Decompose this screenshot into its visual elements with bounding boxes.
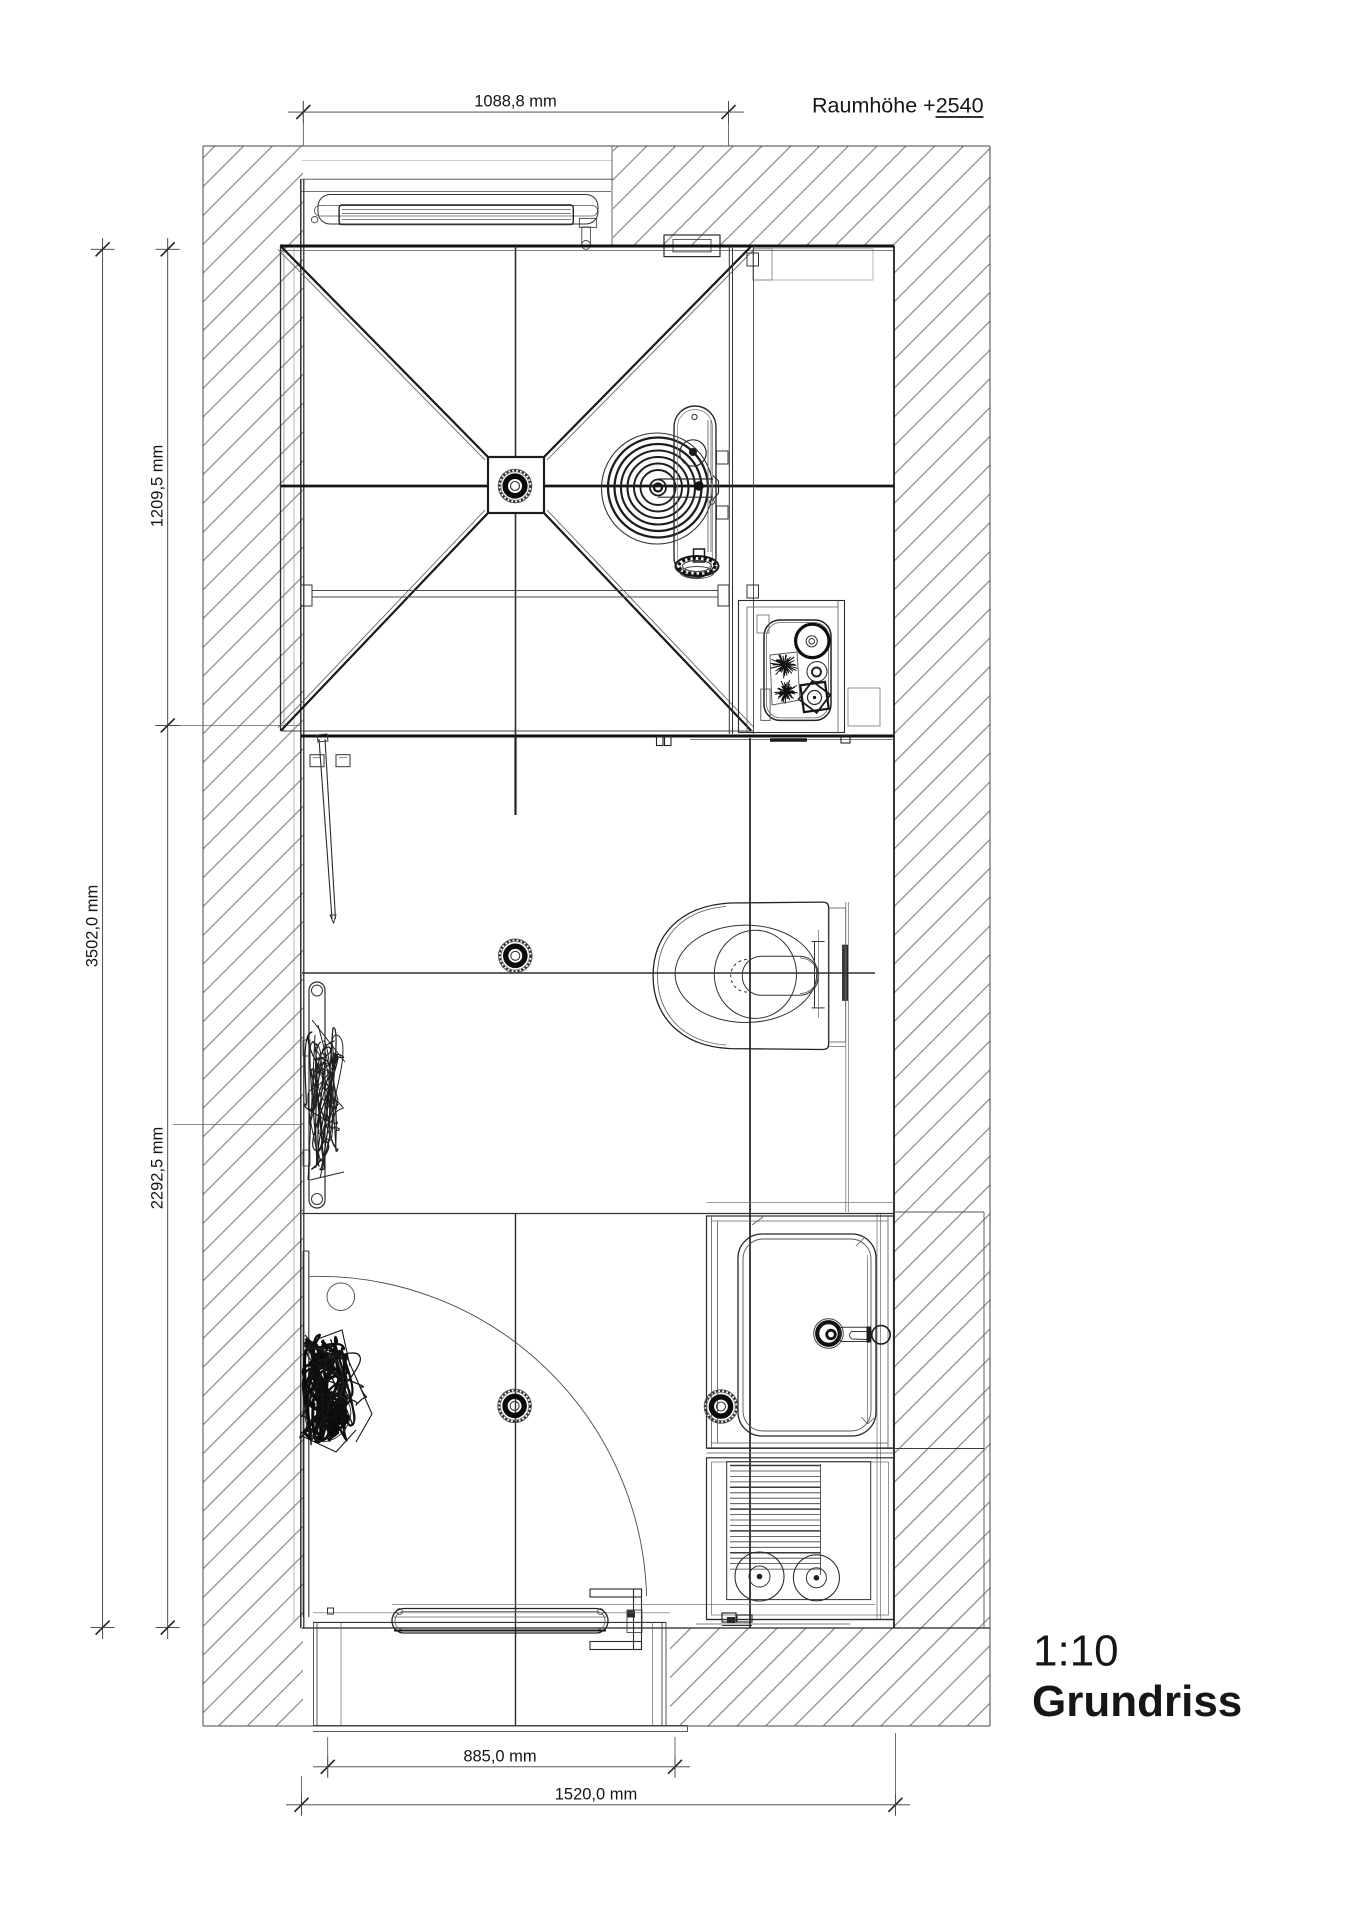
svg-text:3502,0 mm: 3502,0 mm	[84, 885, 102, 968]
svg-text:885,0 mm: 885,0 mm	[463, 1747, 536, 1765]
svg-text:Raumhöhe +2540: Raumhöhe +2540	[812, 93, 984, 117]
svg-text:1520,0 mm: 1520,0 mm	[555, 1785, 638, 1803]
svg-text:Grundriss: Grundriss	[1032, 1677, 1242, 1726]
svg-text:2292,5 mm: 2292,5 mm	[149, 1127, 167, 1210]
svg-text:1:10: 1:10	[1033, 1627, 1119, 1676]
svg-text:1209,5 mm: 1209,5 mm	[149, 445, 167, 528]
svg-text:1088,8 mm: 1088,8 mm	[474, 93, 557, 111]
